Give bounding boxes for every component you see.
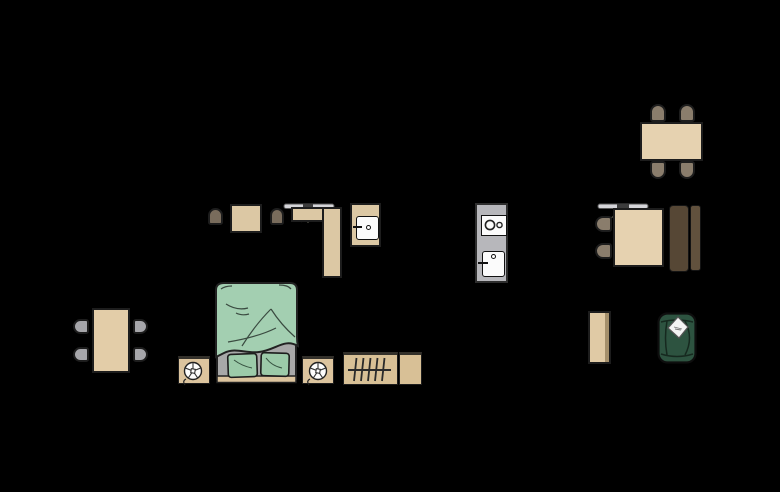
fan-hub-icon (316, 369, 321, 374)
shelf-sideboard[interactable] (588, 311, 611, 364)
fan-hub-icon (191, 369, 196, 374)
desk-area-chair-right[interactable] (270, 208, 284, 225)
cabinet-door (356, 216, 379, 240)
square-table-right[interactable] (613, 208, 664, 267)
nightstand-left[interactable] (178, 356, 210, 384)
burner-large-icon (485, 220, 494, 229)
right-table-chair-upper[interactable] (595, 216, 612, 232)
stove-unit[interactable] (475, 203, 508, 283)
cabinet-with-door[interactable] (350, 203, 381, 247)
nightstand-right[interactable] (302, 356, 334, 384)
oven-door (482, 251, 505, 277)
cooktop-panel (481, 215, 507, 236)
dining-left-chair-bottom-left[interactable] (73, 347, 89, 362)
double-bed[interactable] (214, 282, 299, 384)
desk-area-chair-left[interactable] (208, 208, 223, 225)
side-cube-table[interactable] (399, 352, 422, 385)
dining-tr-chair-top-left[interactable] (650, 104, 666, 122)
dining-tr-chair-top-right[interactable] (679, 104, 695, 122)
desk-area-side-table[interactable] (230, 204, 262, 233)
shelf-edge (605, 313, 609, 362)
cabinet-door-handle-icon (353, 226, 362, 228)
l-desk-vertical-part[interactable] (322, 207, 342, 278)
dining-table-top-right[interactable] (640, 122, 703, 161)
armchair-green[interactable] (657, 312, 697, 364)
dining-table-left[interactable] (92, 308, 130, 373)
oven-knob-icon (491, 254, 496, 259)
burner-small-icon (497, 222, 502, 227)
fan-cord-icon (184, 379, 186, 385)
wardrobe-wide-section[interactable] (669, 205, 689, 272)
l-desk-horizontal-part[interactable] (291, 207, 322, 222)
dining-tr-chair-bottom-right[interactable] (679, 161, 695, 179)
dining-left-chair-bottom-right[interactable] (133, 347, 148, 362)
cabinet-door-knob-icon (366, 225, 371, 230)
radiator[interactable] (343, 352, 398, 385)
wardrobe-narrow-section[interactable] (690, 205, 701, 271)
dining-tr-chair-bottom-left[interactable] (650, 161, 666, 179)
oven-handle-icon (478, 262, 488, 264)
floorplan-canvas (0, 0, 780, 492)
fan-cord-icon (308, 379, 310, 385)
dining-left-chair-top-right[interactable] (133, 319, 148, 334)
right-table-chair-lower[interactable] (595, 243, 612, 259)
dining-left-chair-top-left[interactable] (73, 319, 89, 334)
